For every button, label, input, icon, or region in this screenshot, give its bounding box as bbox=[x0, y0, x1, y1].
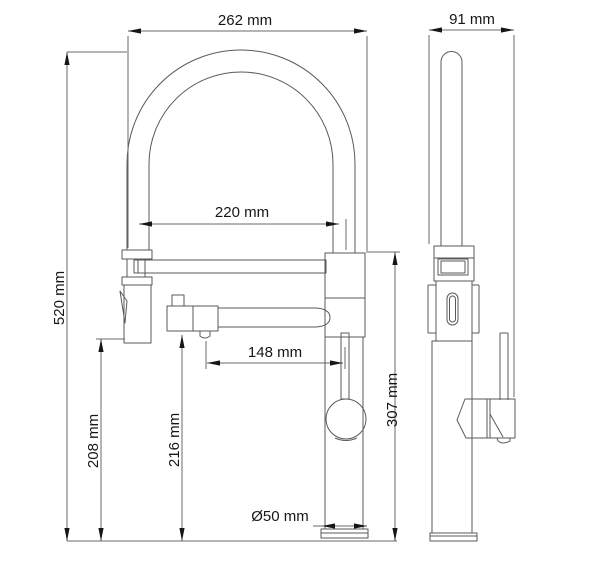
spout-tube-side bbox=[441, 52, 462, 247]
arrow-50-left bbox=[322, 523, 335, 528]
filter-head-cap bbox=[172, 295, 184, 306]
handle-block-side bbox=[487, 399, 515, 438]
filter-arm-tube bbox=[218, 308, 330, 327]
dim-216-label: 216 mm bbox=[166, 413, 183, 467]
arrow-520-bottom bbox=[64, 528, 69, 541]
mixer-body-front bbox=[325, 253, 365, 337]
dim-91-label: 91 mm bbox=[449, 11, 495, 28]
dim-307-label: 307 mm bbox=[384, 373, 401, 427]
handle-block-diagonal bbox=[490, 414, 503, 437]
dim-220-label: 220 mm bbox=[215, 204, 269, 221]
slot-pill-outer bbox=[447, 293, 458, 325]
spray-neck-lines bbox=[127, 259, 145, 277]
handle-nozzle-side bbox=[497, 438, 510, 443]
dimension-arrowheads bbox=[64, 27, 514, 541]
technical-drawing-page: 262 mm 91 mm 220 mm 148 mm Ø50 mm 520 mm… bbox=[0, 0, 600, 571]
dimension-labels: 262 mm 91 mm 220 mm 148 mm Ø50 mm 520 mm… bbox=[51, 11, 495, 525]
handle-ball bbox=[326, 399, 366, 439]
dim-262-label: 262 mm bbox=[218, 12, 272, 29]
arrow-148-left bbox=[207, 360, 220, 365]
base-plate-side bbox=[430, 533, 477, 541]
arrow-208-bottom bbox=[98, 528, 103, 541]
dim-148-label: 148 mm bbox=[248, 344, 302, 361]
filter-nozzle bbox=[200, 331, 210, 338]
arrow-262-left bbox=[128, 28, 141, 33]
body-side bbox=[436, 281, 472, 341]
arrow-216-top bbox=[179, 335, 184, 348]
arrow-262-right bbox=[354, 28, 367, 33]
arrow-50-right bbox=[354, 523, 367, 528]
arrow-216-bottom bbox=[179, 528, 184, 541]
arrow-307-top bbox=[392, 252, 397, 265]
arrow-91-left bbox=[429, 27, 442, 32]
dim-208-label: 208 mm bbox=[85, 414, 102, 468]
arrow-91-right bbox=[501, 27, 514, 32]
spout-arch-inner bbox=[149, 72, 333, 253]
faucet-dimension-drawing: 262 mm 91 mm 220 mm 148 mm Ø50 mm 520 mm… bbox=[0, 0, 600, 571]
spout-arm-bar bbox=[134, 260, 326, 273]
arrow-520-top bbox=[64, 52, 69, 65]
spray-head-body bbox=[124, 285, 151, 343]
dim-50-label: Ø50 mm bbox=[251, 508, 309, 525]
side-view bbox=[428, 52, 515, 542]
collar-side bbox=[434, 246, 474, 258]
arrow-307-bottom bbox=[392, 528, 397, 541]
front-view bbox=[120, 50, 368, 538]
dim-520-label: 520 mm bbox=[51, 271, 68, 325]
spray-collar-lower bbox=[122, 277, 152, 285]
mixer-column-front bbox=[325, 337, 363, 529]
slot-pill-inner bbox=[450, 296, 456, 322]
spout-arch-outer bbox=[127, 50, 355, 253]
clip-window-inner bbox=[441, 261, 465, 273]
arrow-208-top bbox=[98, 339, 103, 352]
arrow-220-left bbox=[139, 221, 152, 226]
spray-collar-upper bbox=[122, 250, 152, 259]
handle-stem-side bbox=[500, 333, 508, 400]
